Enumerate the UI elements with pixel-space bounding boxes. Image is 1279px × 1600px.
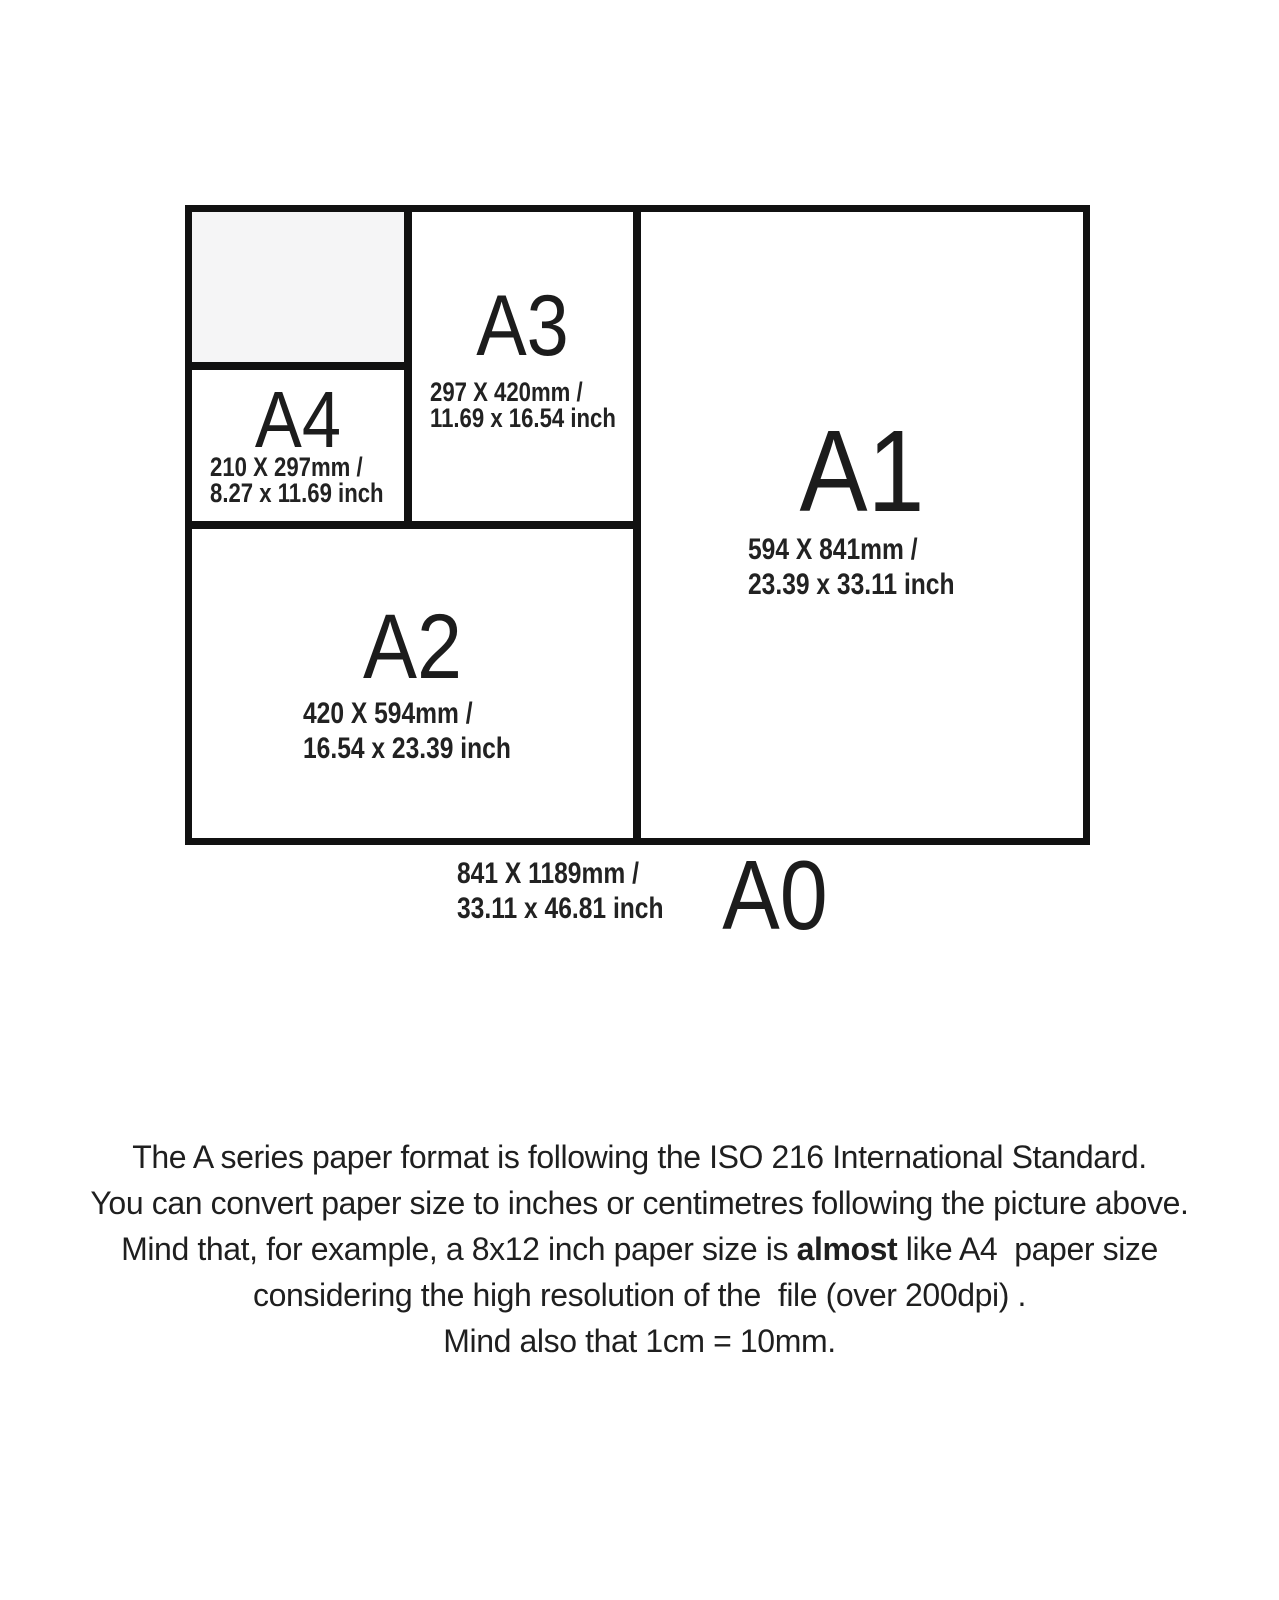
a3-label: A3: [425, 283, 619, 369]
caption-line-3-bold: almost: [797, 1231, 898, 1267]
a2-dimensions-mm: 420 X 594mm /: [303, 696, 511, 731]
caption-text: The A series paper format is following t…: [0, 1134, 1279, 1364]
paper-sizes-diagram: A4 210 X 297mm / 8.27 x 11.69 inch A3 29…: [185, 205, 1090, 845]
a5-divider-line: [185, 362, 412, 370]
a3-dimensions-inch: 11.69 x 16.54 inch: [430, 405, 616, 431]
a1-label: A1: [668, 413, 1057, 529]
a2-label: A2: [218, 601, 606, 693]
a0-dimensions-inch: 33.11 x 46.81 inch: [457, 891, 664, 926]
a2-dimensions-inch: 16.54 x 23.39 inch: [303, 731, 511, 766]
a0-dimensions-mm: 841 X 1189mm /: [457, 856, 664, 891]
a4-label: A4: [205, 380, 392, 460]
caption-line-3-prefix: Mind that, for example, a 8x12 inch pape…: [121, 1231, 796, 1267]
caption-line-3-suffix: like A4 paper size: [897, 1231, 1158, 1267]
a2-divider-line: [185, 521, 641, 529]
a4-dimensions-mm: 210 X 297mm /: [210, 454, 384, 480]
page: A4 210 X 297mm / 8.27 x 11.69 inch A3 29…: [0, 0, 1279, 1600]
a1-dimensions-mm: 594 X 841mm /: [748, 532, 955, 567]
caption-line-5: Mind also that 1cm = 10mm.: [0, 1318, 1279, 1364]
a1-dimensions-inch: 23.39 x 33.11 inch: [748, 567, 955, 602]
a1-dimensions: 594 X 841mm / 23.39 x 33.11 inch: [748, 532, 955, 602]
caption-line-2: You can convert paper size to inches or …: [0, 1180, 1279, 1226]
caption-line-4: considering the high resolution of the f…: [0, 1272, 1279, 1318]
a2-dimensions: 420 X 594mm / 16.54 x 23.39 inch: [303, 696, 511, 766]
a0-dimensions: 841 X 1189mm / 33.11 x 46.81 inch: [457, 856, 664, 926]
caption-line-1: The A series paper format is following t…: [0, 1134, 1279, 1180]
a0-label: A0: [709, 846, 841, 944]
a4-dimensions: 210 X 297mm / 8.27 x 11.69 inch: [210, 454, 384, 506]
a3-dimensions-mm: 297 X 420mm /: [430, 379, 616, 405]
a3-dimensions: 297 X 420mm / 11.69 x 16.54 inch: [430, 379, 616, 431]
caption-line-3: Mind that, for example, a 8x12 inch pape…: [0, 1226, 1279, 1272]
a4-dimensions-inch: 8.27 x 11.69 inch: [210, 480, 384, 506]
